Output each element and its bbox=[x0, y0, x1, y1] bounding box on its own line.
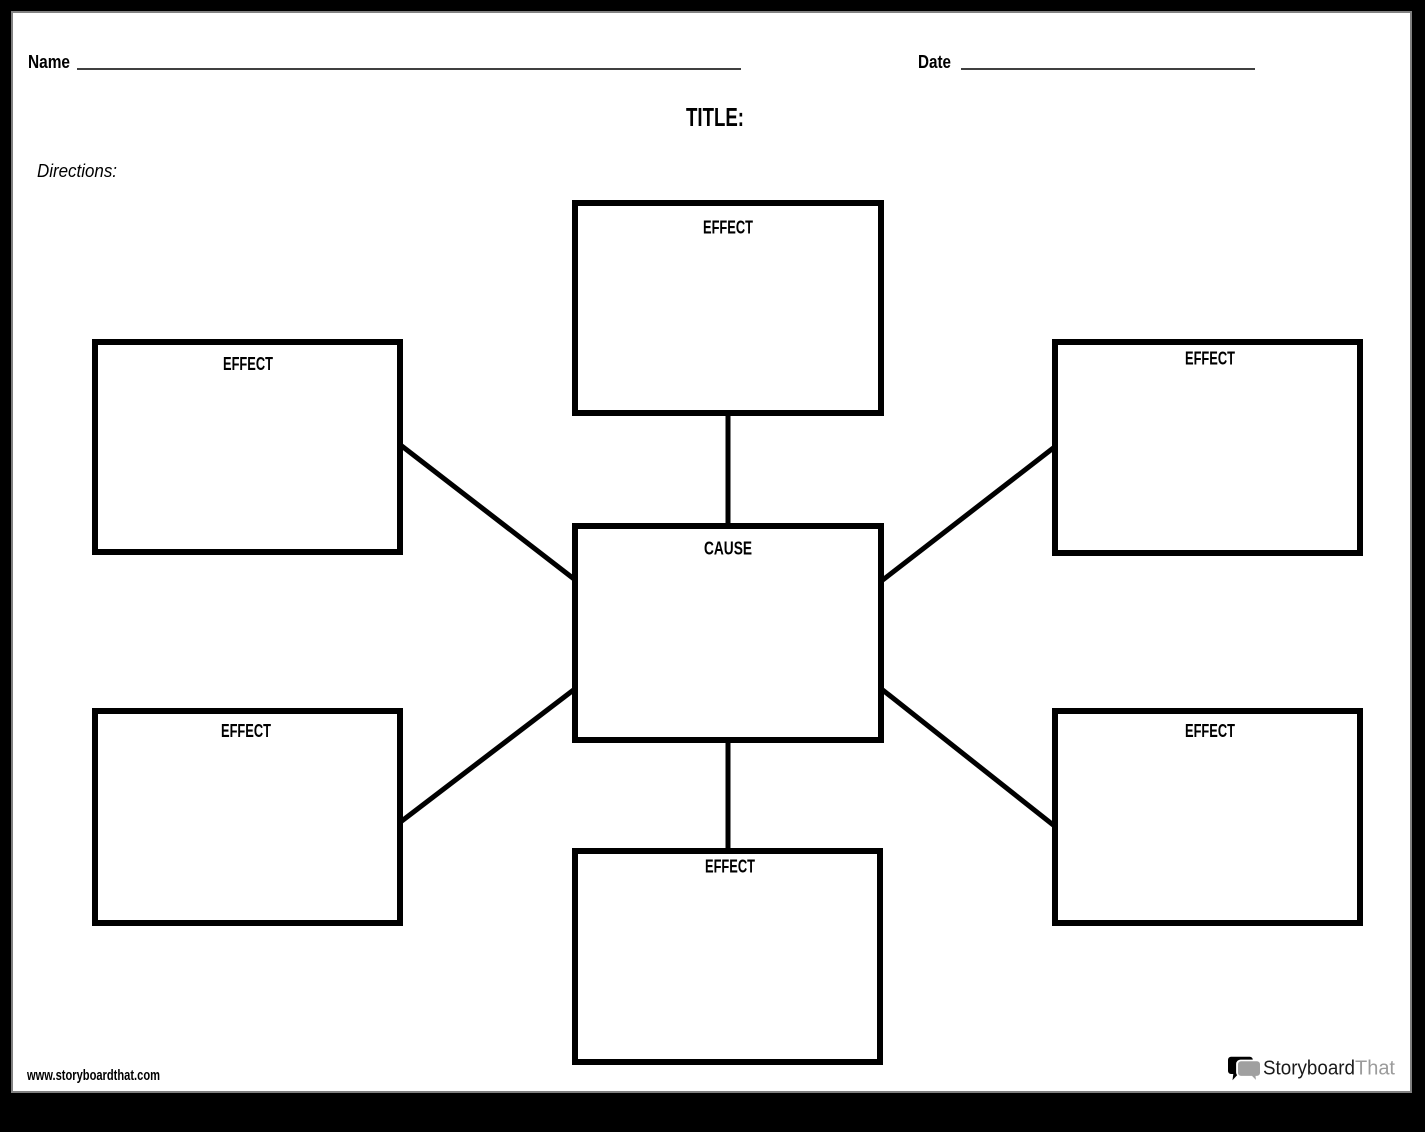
svg-text:www.storyboardthat.com: www.storyboardthat.com bbox=[26, 1068, 160, 1084]
svg-text:EFFECT: EFFECT bbox=[1185, 348, 1235, 369]
svg-text:EFFECT: EFFECT bbox=[1185, 720, 1235, 741]
svg-text:CAUSE: CAUSE bbox=[704, 538, 752, 559]
svg-text:EFFECT: EFFECT bbox=[221, 720, 271, 741]
svg-text:Storyboard: Storyboard bbox=[1263, 1057, 1355, 1080]
svg-text:Date: Date bbox=[918, 51, 951, 72]
svg-text:TITLE:: TITLE: bbox=[686, 104, 744, 132]
svg-text:EFFECT: EFFECT bbox=[223, 353, 273, 374]
svg-text:Directions:: Directions: bbox=[37, 161, 117, 181]
svg-text:That: That bbox=[1355, 1057, 1395, 1080]
svg-text:Name: Name bbox=[28, 51, 70, 72]
svg-text:EFFECT: EFFECT bbox=[703, 217, 753, 238]
svg-text:EFFECT: EFFECT bbox=[705, 856, 755, 877]
